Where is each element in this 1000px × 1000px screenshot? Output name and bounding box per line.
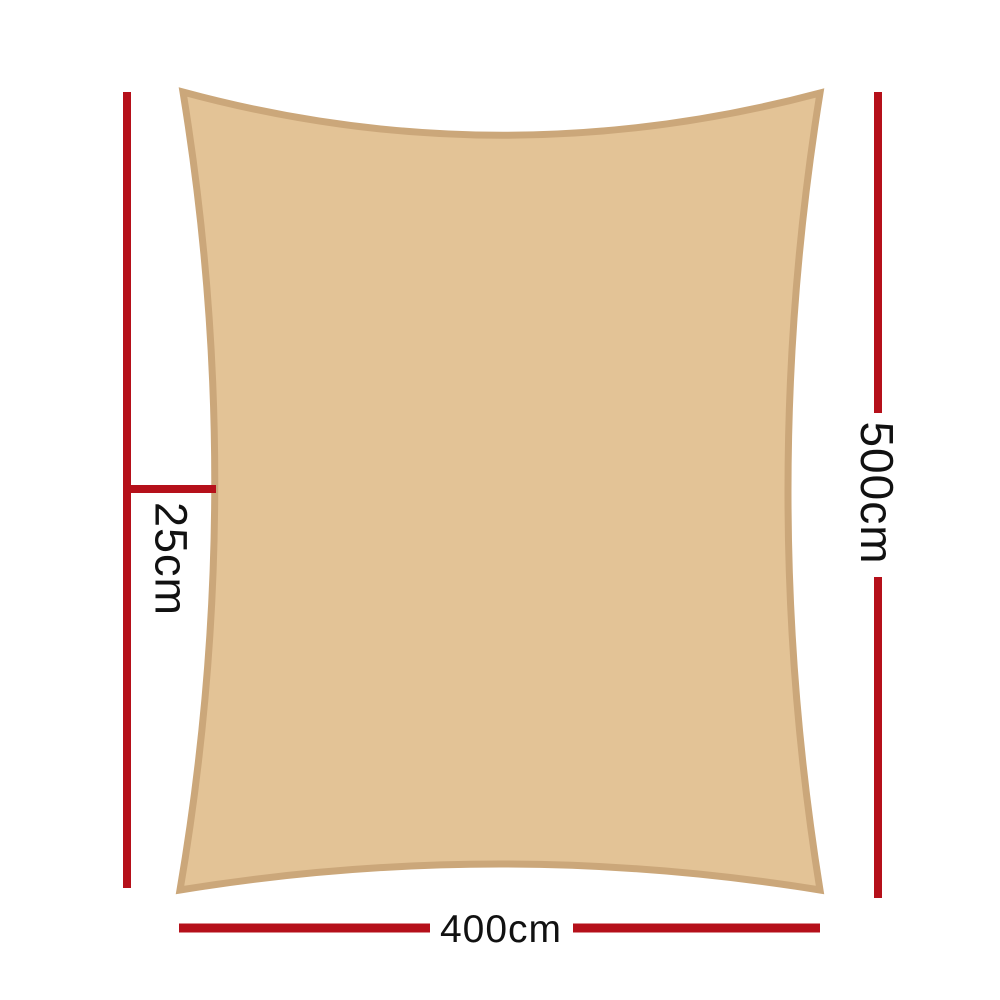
shade-sail-dimension-diagram: 25cm 500cm 400cm (0, 0, 1000, 1000)
height-dimension-label: 500cm (851, 421, 903, 564)
shade-sail-shape (180, 92, 820, 890)
offset-dimension-label: 25cm (145, 502, 196, 616)
diagram-canvas: 25cm 500cm 400cm (0, 0, 1000, 1000)
width-dimension-label: 400cm (440, 908, 562, 951)
